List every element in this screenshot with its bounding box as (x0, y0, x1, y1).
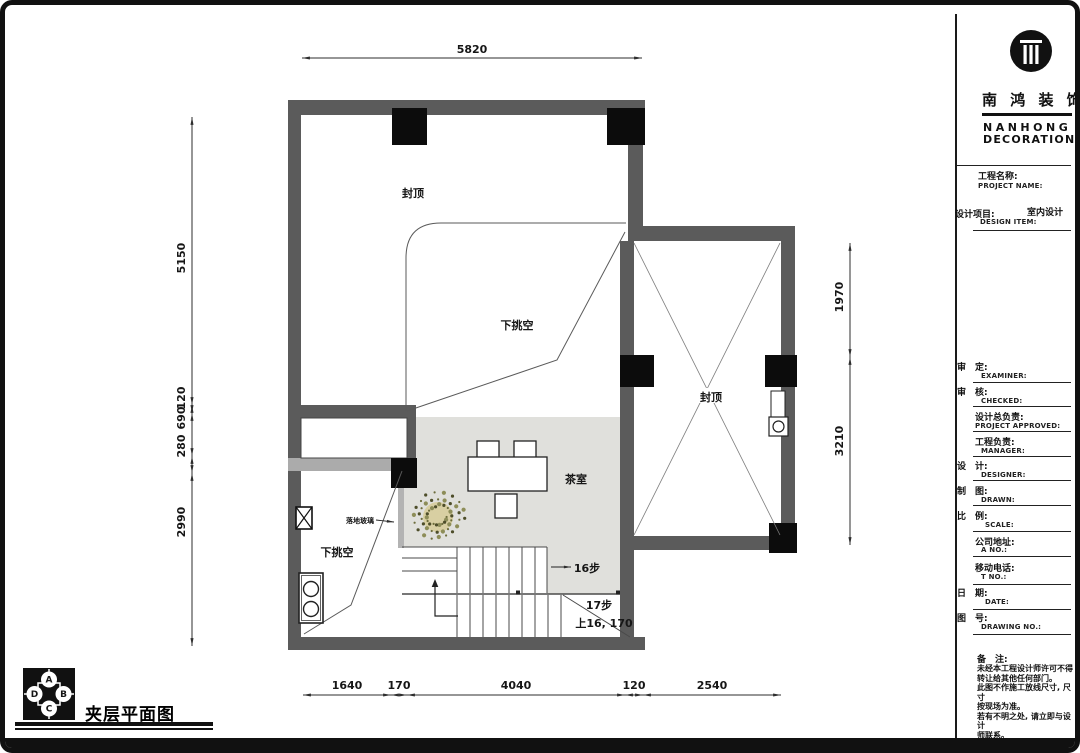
project-name-label-en: PROJECT NAME: (978, 182, 1043, 190)
dim-left-690: 690 (175, 406, 188, 429)
dim-left-120: 120 (175, 386, 188, 409)
field-line (973, 634, 1071, 635)
compass-c: C (46, 705, 53, 715)
field-drawn-en: DRAWN: (981, 496, 1015, 504)
dim-left-280: 280 (175, 434, 188, 457)
label-tea-room: 茶室 (564, 472, 587, 486)
notes-line: 未经本工程设计师许可不得 (977, 664, 1073, 674)
field-date-en: DATE: (985, 598, 1009, 606)
label-capped-right: 封顶 (700, 390, 722, 404)
label-steps-16: 16步 (574, 561, 600, 575)
orientation-compass-icon: A B C D (23, 668, 75, 720)
dim-bottom-170: 170 (388, 679, 411, 692)
design-item-value: 室内设计 (1027, 205, 1063, 218)
title-underline (15, 722, 213, 726)
drawing-sheet: 5820 5150 120 690 280 2990 1970 3210 164… (0, 0, 1080, 753)
dim-bottom-4040: 4040 (501, 679, 532, 692)
field-scale-cn: 比 例: (957, 509, 988, 522)
walls (288, 100, 795, 650)
floor-plan: 5820 5150 120 690 280 2990 1970 3210 164… (5, 5, 940, 748)
field-line (973, 531, 1071, 532)
dim-left-5150: 5150 (175, 242, 188, 273)
compass-b: B (60, 690, 67, 700)
field-address-en: A NO.: (981, 546, 1007, 554)
dim-bottom-2540: 2540 (697, 679, 728, 692)
cabinet-niche (301, 418, 407, 458)
field-line (973, 431, 1071, 432)
wall-box-symbol (296, 507, 312, 529)
field-line (973, 456, 1071, 457)
dim-right-3210: 3210 (833, 425, 846, 456)
compass-d: D (31, 690, 38, 700)
label-steps-17: 17步 (586, 598, 612, 612)
title-underline-2 (15, 728, 213, 730)
project-name-label-cn: 工程名称: (978, 169, 1018, 182)
company-name-en-2: DECORATION (983, 133, 1075, 146)
label-up-note: 上16, 170 (575, 616, 633, 630)
dim-right-1970: 1970 (833, 281, 846, 312)
void-boundary-main (406, 223, 626, 411)
dim-left-2990: 2990 (175, 506, 188, 537)
chair (495, 494, 517, 518)
field-line (973, 584, 1071, 585)
dim-top: 5820 (457, 43, 488, 56)
field-line (973, 382, 1071, 383)
notes-line: 若有不明之处, 请立即与设计 (977, 712, 1073, 731)
field-drawing-no-en: DRAWING NO.: (981, 623, 1041, 631)
field-line (973, 556, 1071, 557)
field-phone-en: T NO.: (981, 573, 1007, 581)
field-checked-en: CHECKED: (981, 397, 1022, 405)
field-examiner-en: EXAMINER: (981, 372, 1027, 380)
dim-bottom-120: 120 (623, 679, 646, 692)
label-void-lower: 下挑空 (321, 545, 354, 559)
field-line (973, 505, 1071, 506)
stove-fixture (299, 573, 323, 623)
field-line (973, 480, 1071, 481)
section-rule (957, 165, 1071, 166)
field-manager-en: MANAGER: (981, 447, 1025, 455)
field-designer-en: DESIGNER: (981, 471, 1026, 479)
compass-a: A (46, 676, 53, 686)
title-block-divider (955, 14, 957, 743)
notes-line: 此图不作施工放线尺寸, 尺寸 (977, 683, 1073, 702)
field-line (973, 609, 1071, 610)
label-void-main: 下挑空 (501, 318, 534, 332)
notes-line: 按现场为准。 (977, 702, 1073, 712)
sheet-bottom-border (5, 738, 1075, 749)
water-heater-fixture (769, 391, 788, 436)
notes-line: 转让给其他任何部门。 (977, 674, 1073, 684)
label-capped-main: 封顶 (402, 186, 424, 200)
label-floor-glass: 落地玻璃 (346, 516, 374, 525)
stair-direction-arrow (432, 579, 458, 616)
logo-rule (982, 113, 1072, 116)
notes-text: 未经本工程设计师许可不得 转让给其他任何部门。 此图不作施工放线尺寸, 尺寸 按… (977, 664, 1073, 740)
company-name-cn: 南 鸿 装 饰 (982, 89, 1080, 110)
company-logo-icon (1009, 29, 1053, 73)
field-scale-en: SCALE: (985, 521, 1014, 529)
design-item-label-en: DESIGN ITEM: (980, 218, 1037, 226)
section-rule (973, 230, 1071, 231)
table (468, 457, 547, 491)
field-approved-en: PROJECT APPROVED: (975, 422, 1060, 430)
dim-bottom-1640: 1640 (332, 679, 363, 692)
field-date-cn: 日 期: (957, 586, 988, 599)
field-line (973, 406, 1071, 407)
